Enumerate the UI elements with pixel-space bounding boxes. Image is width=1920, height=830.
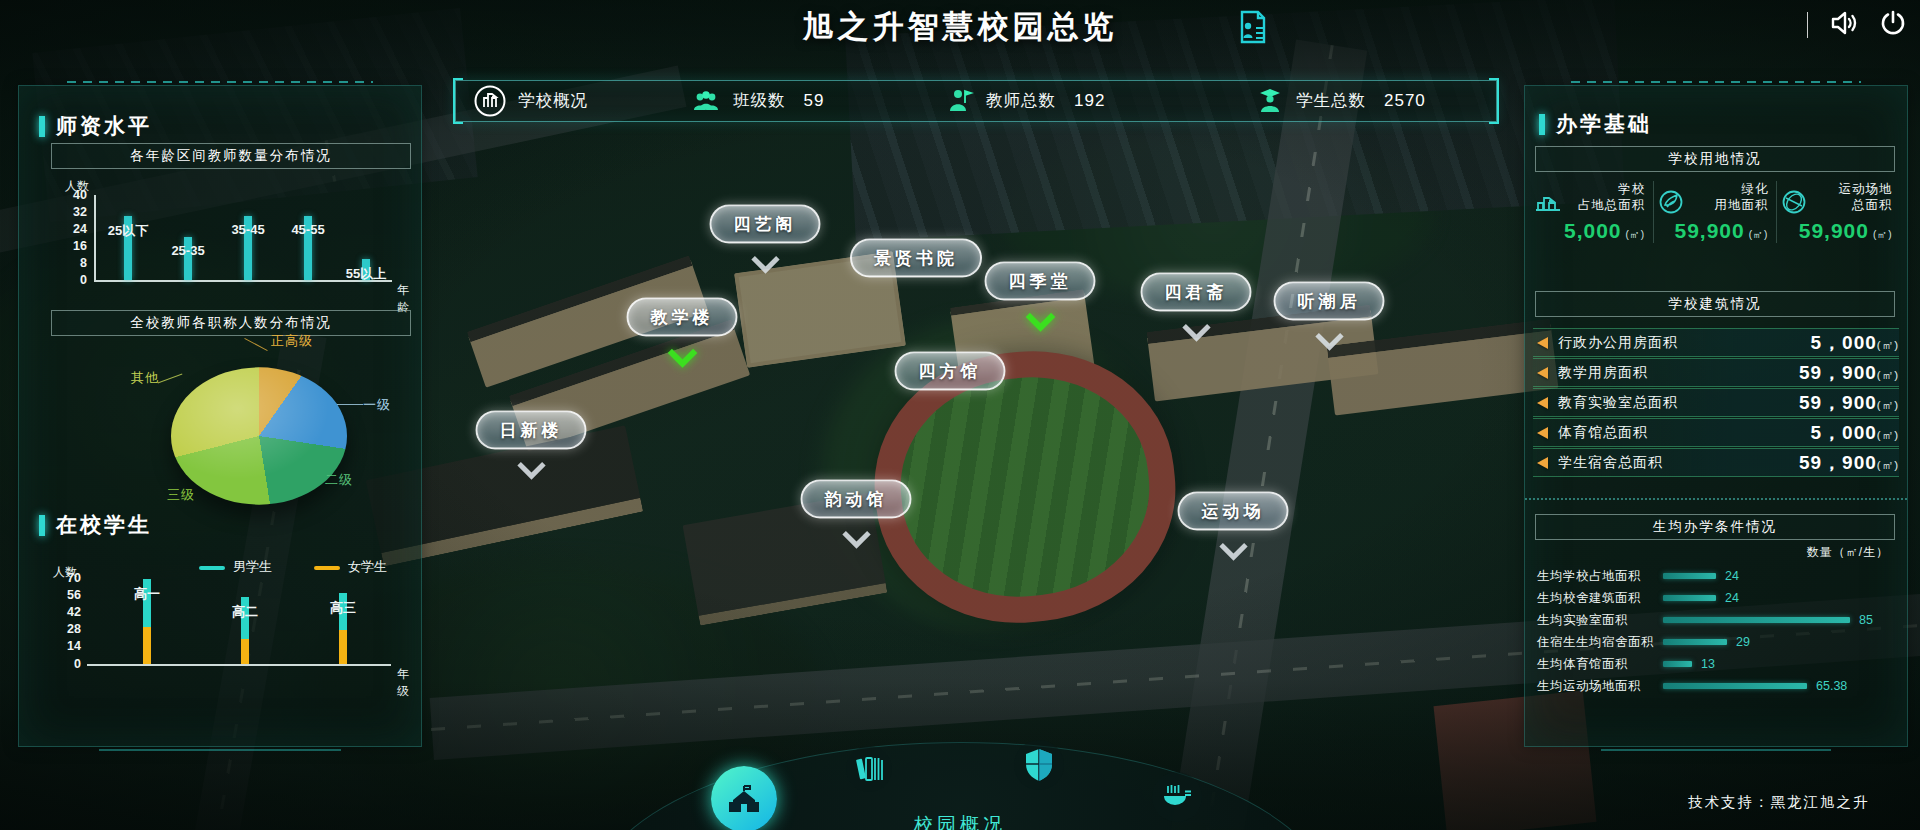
per-student-bar	[1663, 617, 1850, 623]
per-student-row: 生均体育馆面积 13	[1537, 654, 1899, 674]
per-student-value: 24	[1725, 569, 1739, 583]
accent-bar	[39, 116, 45, 137]
pie-label: 一级	[363, 396, 391, 414]
land-stat-value: 5,000(㎡)	[1564, 219, 1645, 243]
bar-column: 45-55	[304, 216, 312, 280]
building-row-label: 行政办公用房面积	[1558, 334, 1811, 352]
triangle-marker-icon	[1537, 427, 1548, 439]
triangle-marker-icon	[1537, 337, 1548, 349]
stat-teachers: 教师总数 192	[946, 81, 1105, 121]
nav-campus-overview-button[interactable]	[711, 766, 777, 830]
per-student-bar	[1663, 573, 1716, 579]
per-student-value: 29	[1736, 635, 1750, 649]
building-label-tingchaoju[interactable]: 听潮居	[1274, 282, 1385, 321]
students-bar-female	[339, 630, 347, 664]
map-stadium-field	[890, 366, 1159, 609]
building-label-sifangguan[interactable]: 四方馆	[895, 352, 1006, 391]
accent-bar	[39, 515, 45, 536]
building-row-value: 5，000(㎡)	[1811, 330, 1899, 356]
bar-column: 25-35	[184, 237, 192, 280]
per-student-row: 住宿生生均宿舍面积 29	[1537, 632, 1899, 652]
land-stat-label: 绿化用地面积	[1714, 181, 1768, 213]
per-student-value: 65.38	[1816, 679, 1847, 693]
nav-library-button[interactable]	[846, 746, 892, 792]
bar-column: 25以下	[124, 216, 132, 280]
per-student-row: 生均实验室面积 85	[1537, 610, 1899, 630]
noodle-bowl-icon	[1161, 782, 1193, 812]
per-student-label: 生均校舍建筑面积	[1537, 590, 1663, 607]
speaker-icon[interactable]	[1830, 10, 1858, 40]
per-student-label: 生均运动场地面积	[1537, 678, 1663, 695]
pie-label: 正高级	[271, 332, 313, 350]
pie-label-line	[337, 404, 363, 405]
school-stats-bar: 学校概况 班级数 59 教师总数 192	[455, 80, 1497, 122]
building-row: 学生宿舍总面积 59，900(㎡)	[1533, 448, 1899, 477]
stat-value: 59	[804, 91, 825, 111]
pie-label-line	[244, 338, 267, 351]
per-student-row: 生均校舍建筑面积 24	[1537, 588, 1899, 608]
building-label-rixinlou[interactable]: 日新楼	[476, 411, 587, 450]
per-student-bar	[1663, 683, 1807, 689]
per-student-label: 生均学校占地面积	[1537, 568, 1663, 585]
age-distribution-chart: 人数 40 32 24 16 8 0 25以下 25-35 35-45 45-5…	[39, 178, 411, 303]
per-student-unit-label: 数量（㎡/生）	[1807, 544, 1889, 561]
dotted-divider	[1525, 498, 1907, 500]
stat-classes: 班级数 59	[691, 81, 824, 121]
subsection-title: 学校建筑情况	[1535, 291, 1895, 317]
stat-students: 学生总数 2570	[1256, 81, 1426, 121]
building-label-siyige[interactable]: 四艺阁	[710, 205, 821, 244]
building-row: 行政办公用房面积 5，000(㎡)	[1533, 328, 1899, 357]
per-student-row: 生均运动场地面积 65.38	[1537, 676, 1899, 696]
report-icon[interactable]	[1238, 10, 1268, 44]
teacher-icon	[946, 87, 974, 115]
building-label-yundongguan[interactable]: 韵动馆	[801, 480, 912, 519]
subsection-title: 生均办学条件情况	[1535, 514, 1895, 540]
pie-sheen	[171, 367, 347, 504]
student-icon	[1256, 87, 1284, 115]
school-overview-label: 学校概况	[518, 90, 588, 112]
school-overview-icon	[474, 85, 506, 117]
building-label-yundongchang[interactable]: 运动场	[1178, 492, 1289, 531]
page-title: 旭之升智慧校园总览	[0, 6, 1920, 48]
per-student-value: 24	[1725, 591, 1739, 605]
bar-column: 高二	[241, 597, 249, 664]
campus-area-icon	[1535, 189, 1561, 215]
foundation-panel: 办学基础 学校用地情况 学校占地总面积 5,000(㎡) 绿化用地面积 59,9…	[1524, 85, 1908, 747]
stat-value: 2570	[1384, 91, 1426, 111]
building-row: 教育实验室总面积 59，900(㎡)	[1533, 388, 1899, 417]
building-label-sijunzhai[interactable]: 四君斋	[1141, 273, 1252, 312]
chart-title: 各年龄区间教师数量分布情况	[51, 143, 411, 169]
triangle-marker-icon	[1537, 367, 1548, 379]
per-student-label: 生均体育馆面积	[1537, 656, 1663, 673]
students-bar-female	[143, 627, 151, 664]
per-student-bar	[1663, 661, 1692, 667]
window-controls	[1807, 10, 1906, 40]
nav-security-button[interactable]	[1014, 740, 1064, 790]
school-overview-item: 学校概况	[474, 81, 588, 121]
land-stat-label: 运动场地总面积	[1839, 181, 1893, 213]
section-header: 师资水平	[39, 112, 152, 140]
building-row-label: 教育实验室总面积	[1558, 394, 1799, 412]
section-header: 在校学生	[39, 511, 152, 539]
land-stat-value: 59,900(㎡)	[1675, 219, 1769, 243]
section-title: 办学基础	[1556, 110, 1652, 138]
stat-label: 教师总数	[986, 90, 1056, 112]
plot-area: 高一 高二 高三	[87, 578, 391, 666]
pie-label-line	[158, 374, 183, 384]
bar-column: 高三	[339, 593, 347, 664]
building-row: 教学用房面积 59，900(㎡)	[1533, 358, 1899, 387]
students-chart: 人数 70 56 42 28 14 0 高一 高二 高三 年级	[39, 564, 411, 694]
school-house-icon	[727, 782, 761, 816]
land-stat-label: 学校占地总面积	[1578, 181, 1646, 213]
building-row-label: 体育馆总面积	[1558, 424, 1811, 442]
security-shield-icon	[1022, 747, 1056, 783]
building-row-label: 学生宿舍总面积	[1558, 454, 1799, 472]
per-student-value: 85	[1859, 613, 1873, 627]
smart-campus-dashboard: 旭之升智慧校园总览	[0, 0, 1920, 830]
bar-column: 55以上	[362, 259, 370, 280]
stat-label: 班级数	[733, 90, 786, 112]
land-stat: 运动场地总面积 59,900(㎡)	[1777, 181, 1900, 243]
x-axis-label: 年级	[397, 666, 411, 700]
stat-value: 192	[1074, 91, 1105, 111]
pie-label: 其他	[131, 369, 159, 387]
per-student-bar	[1663, 639, 1727, 645]
per-student-bar	[1663, 595, 1716, 601]
land-stat-value: 59,900(㎡)	[1799, 219, 1893, 243]
support-credit: 技术支持：黑龙江旭之升	[1688, 793, 1870, 812]
building-row-value: 5，000(㎡)	[1811, 420, 1899, 446]
per-student-label: 住宿生生均宿舍面积	[1537, 634, 1663, 651]
students-bar-female	[241, 639, 249, 664]
library-books-icon	[854, 754, 884, 784]
per-student-row: 生均学校占地面积 24	[1537, 566, 1899, 586]
nav-active-label[interactable]: 校园概况	[914, 812, 1006, 830]
nav-canteen-button[interactable]	[1152, 772, 1202, 822]
pie-label: 二级	[325, 471, 353, 489]
building-row-value: 59，900(㎡)	[1799, 360, 1899, 386]
stat-label: 学生总数	[1296, 90, 1366, 112]
building-label-sijitang[interactable]: 四季堂	[985, 262, 1096, 301]
building-row-label: 教学用房面积	[1558, 364, 1799, 382]
per-student-label: 生均实验室面积	[1537, 612, 1663, 629]
building-label-jingxian[interactable]: 景贤书院	[850, 239, 982, 278]
accent-bar	[1539, 114, 1545, 135]
class-group-icon	[691, 88, 721, 114]
land-stat: 学校占地总面积 5,000(㎡)	[1531, 181, 1654, 243]
section-title: 在校学生	[56, 511, 152, 539]
teachers-panel: 师资水平 各年龄区间教师数量分布情况 人数 40 32 24 16 8 0 25…	[18, 85, 422, 747]
section-header: 办学基础	[1539, 110, 1652, 138]
bar-column: 35-45	[244, 216, 252, 280]
building-row-value: 59，900(㎡)	[1799, 450, 1899, 476]
building-label-jiaoxuelou[interactable]: 教学楼	[627, 298, 738, 337]
power-icon[interactable]	[1880, 10, 1906, 40]
bar-column: 高一	[143, 579, 151, 664]
building-row: 体育馆总面积 5，000(㎡)	[1533, 418, 1899, 447]
pie-label: 三级	[167, 486, 195, 504]
chart-title: 全校教师各职称人数分布情况	[51, 310, 411, 336]
section-title: 师资水平	[56, 112, 152, 140]
triangle-marker-icon	[1537, 457, 1548, 469]
subsection-title: 学校用地情况	[1535, 146, 1895, 172]
greenery-icon	[1658, 189, 1684, 215]
land-stat: 绿化用地面积 59,900(㎡)	[1654, 181, 1777, 243]
per-student-value: 13	[1701, 657, 1715, 671]
divider	[1807, 12, 1808, 38]
building-row-value: 59，900(㎡)	[1799, 390, 1899, 416]
teacher-title-pie	[171, 367, 347, 504]
land-stats-row: 学校占地总面积 5,000(㎡) 绿化用地面积 59,900(㎡) 运动场地总面…	[1531, 181, 1901, 243]
sports-ground-icon	[1781, 189, 1807, 215]
plot-area: 25以下 25-35 35-45 45-55 55以上	[94, 195, 392, 282]
triangle-marker-icon	[1537, 397, 1548, 409]
